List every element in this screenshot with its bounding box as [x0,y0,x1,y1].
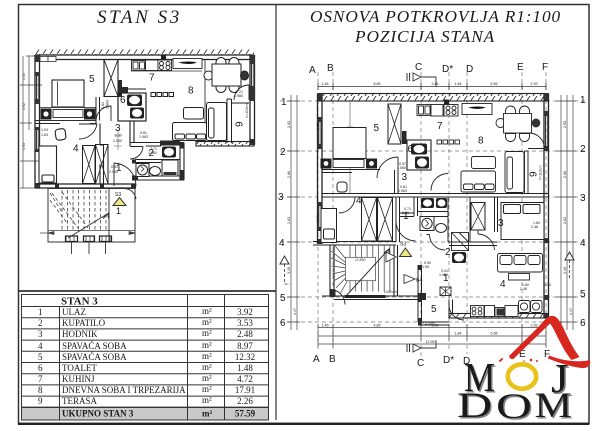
svg-text:2.93: 2.93 [287,121,291,128]
svg-text:≥160cm: ≥160cm [384,290,397,294]
svg-text:1.963: 1.963 [398,189,407,193]
svg-text:STAN 3: STAN 3 [61,296,98,308]
svg-text:4.85: 4.85 [374,324,381,328]
svg-text:B: B [329,354,336,365]
svg-text:1: 1 [580,95,586,106]
svg-text:2.39: 2.39 [531,82,538,86]
svg-text:A: A [309,65,316,76]
svg-text:1: 1 [116,163,122,174]
svg-text:2.93: 2.93 [563,121,567,128]
svg-text:m²: m² [202,395,212,405]
svg-text:h=110cm: h=110cm [420,322,435,326]
svg-text:3.19: 3.19 [287,267,291,274]
svg-text:2.39: 2.39 [531,324,538,328]
svg-text:=2.850: =2.850 [354,258,365,262]
svg-text:D: D [466,64,473,75]
svg-text:B: B [327,63,334,74]
svg-text:12.32: 12.32 [235,352,255,362]
svg-text:m²: m² [202,340,212,350]
svg-text:1: 1 [38,307,43,317]
svg-text:2.48: 2.48 [237,329,253,339]
svg-text:3: 3 [580,193,586,204]
svg-text:1.03: 1.03 [316,215,320,222]
svg-text:3: 3 [38,329,43,339]
svg-text:1.45: 1.45 [322,82,329,86]
svg-text:C: C [417,358,424,369]
svg-text:5: 5 [280,293,286,304]
svg-text:64: 64 [416,278,423,284]
svg-text:1.62: 1.62 [22,103,26,110]
svg-text:ULAZ: ULAZ [62,307,86,317]
svg-text:4: 4 [580,238,586,249]
svg-text:D*: D* [442,64,453,75]
svg-text:E: E [517,62,524,73]
svg-text:5: 5 [38,352,43,362]
svg-text:1.45: 1.45 [322,324,329,328]
svg-text:7: 7 [38,374,43,384]
svg-text:2: 2 [149,148,155,159]
svg-text:1.84: 1.84 [455,82,462,86]
svg-text:2.63: 2.63 [563,217,567,224]
svg-text:KUPATILO: KUPATILO [62,318,106,328]
svg-text:2.46: 2.46 [520,287,527,291]
svg-text:POZICIJA STANA: POZICIJA STANA [354,27,495,46]
svg-text:4: 4 [38,341,43,351]
svg-text:OSNOVA POTKROVLJA R1:100: OSNOVA POTKROVLJA R1:100 [310,7,561,26]
svg-text:1.060: 1.060 [113,139,122,143]
svg-text:0.97: 0.97 [115,134,122,138]
svg-text:6: 6 [280,318,286,329]
svg-text:6: 6 [38,363,43,373]
svg-text:7: 7 [149,73,155,84]
svg-text:h=110cm: h=110cm [539,165,543,180]
svg-text:8.85: 8.85 [374,82,381,86]
svg-text:6: 6 [580,318,586,329]
svg-text:1: 1 [281,97,287,108]
svg-text:57.59: 57.59 [235,409,256,419]
svg-text:7: 7 [437,121,443,132]
svg-text:2.66: 2.66 [287,171,291,178]
svg-text:3.92: 3.92 [237,307,253,317]
svg-text:SPAVAĆA SOBA: SPAVAĆA SOBA [62,352,127,362]
svg-text:5: 5 [89,74,95,85]
svg-text:S3: S3 [115,192,121,198]
svg-text:12.95: 12.95 [426,340,435,344]
svg-text:1.980: 1.980 [234,94,243,98]
svg-text:5.56: 5.56 [491,82,498,86]
svg-text:m²: m² [202,373,212,383]
svg-text:2: 2 [445,247,451,258]
svg-text:1.060: 1.060 [397,166,406,170]
svg-text:5: 5 [374,123,380,134]
svg-text:F: F [542,62,548,73]
svg-text:2.84: 2.84 [432,82,439,86]
svg-text:8: 8 [38,385,43,395]
svg-text:M: M [535,386,572,426]
svg-text:1.50: 1.50 [544,283,551,287]
svg-text:3.19: 3.19 [563,267,567,274]
svg-text:8.97: 8.97 [237,341,253,351]
svg-text:C: C [415,62,422,73]
svg-text:5: 5 [580,289,586,300]
svg-text:TERASA: TERASA [62,396,98,406]
svg-text:3: 3 [402,172,408,183]
svg-text:1.40: 1.40 [22,73,26,80]
svg-text:4.72: 4.72 [237,374,253,384]
svg-text:m²: m² [202,306,212,316]
svg-text:5: 5 [431,304,437,315]
svg-text:D: D [457,386,492,426]
svg-text:4: 4 [500,279,506,290]
svg-text:1.960: 1.960 [439,273,448,277]
svg-text:1.95: 1.95 [422,265,429,269]
svg-text:3: 3 [115,123,121,134]
svg-text:1.63: 1.63 [41,133,48,137]
svg-text:6: 6 [120,95,126,106]
svg-text:4: 4 [279,238,285,249]
svg-text:m²: m² [202,362,212,372]
svg-text:1.47: 1.47 [569,308,573,315]
svg-text:2.66: 2.66 [563,171,567,178]
svg-text:2.26: 2.26 [237,396,253,406]
svg-text:UKUPNO STAN 3: UKUPNO STAN 3 [62,409,134,419]
svg-text:1.84: 1.84 [455,332,462,336]
svg-text:0.81: 0.81 [101,102,105,109]
svg-text:2: 2 [280,147,286,158]
svg-text:2.20: 2.20 [402,211,409,215]
svg-text:1.03: 1.03 [22,143,26,150]
svg-text:1: 1 [116,206,121,216]
svg-text:2.46: 2.46 [531,225,538,229]
svg-text:5.56: 5.56 [491,332,498,336]
svg-text:m²: m² [202,384,212,394]
svg-text:3: 3 [278,192,284,203]
svg-text:S3: S3 [400,242,406,248]
svg-text:2: 2 [38,318,43,328]
svg-text:A: A [313,354,320,365]
svg-text:3.53: 3.53 [237,318,253,328]
svg-text:KUHINJ: KUHINJ [62,374,95,384]
svg-text:1.963: 1.963 [139,135,148,139]
svg-text:1.963: 1.963 [106,100,110,109]
svg-text:m²: m² [202,409,212,419]
svg-text:4: 4 [356,196,362,207]
svg-text:9: 9 [38,396,43,406]
svg-text:HODNIK: HODNIK [62,329,98,339]
svg-text:m²: m² [202,328,212,338]
svg-text:3: 3 [498,218,504,229]
svg-text:STAN S3: STAN S3 [97,7,182,28]
svg-text:1.40: 1.40 [316,123,320,130]
svg-text:O: O [496,386,532,426]
svg-text:2: 2 [580,144,586,155]
svg-text:8: 8 [478,136,484,147]
svg-text:1.48: 1.48 [237,363,253,373]
svg-text:1.03: 1.03 [41,128,48,132]
svg-text:DNEVNA SOBA I TRPEZARIJA: DNEVNA SOBA I TRPEZARIJA [62,385,186,395]
svg-text:m²: m² [202,351,212,361]
svg-text:4: 4 [73,144,79,155]
svg-text:D*: D* [443,355,454,366]
svg-text:6: 6 [408,144,414,155]
svg-text:TOALET: TOALET [62,363,97,373]
svg-text:9: 9 [235,121,246,127]
svg-text:SPAVAĆA SOBA: SPAVAĆA SOBA [62,341,127,351]
svg-text:m²: m² [202,317,212,327]
svg-text:8: 8 [188,86,194,97]
svg-text:h=110cm: h=110cm [245,103,249,118]
svg-text:1.47: 1.47 [293,308,297,315]
svg-text:17.91: 17.91 [235,385,255,395]
svg-text:2.63: 2.63 [287,217,291,224]
